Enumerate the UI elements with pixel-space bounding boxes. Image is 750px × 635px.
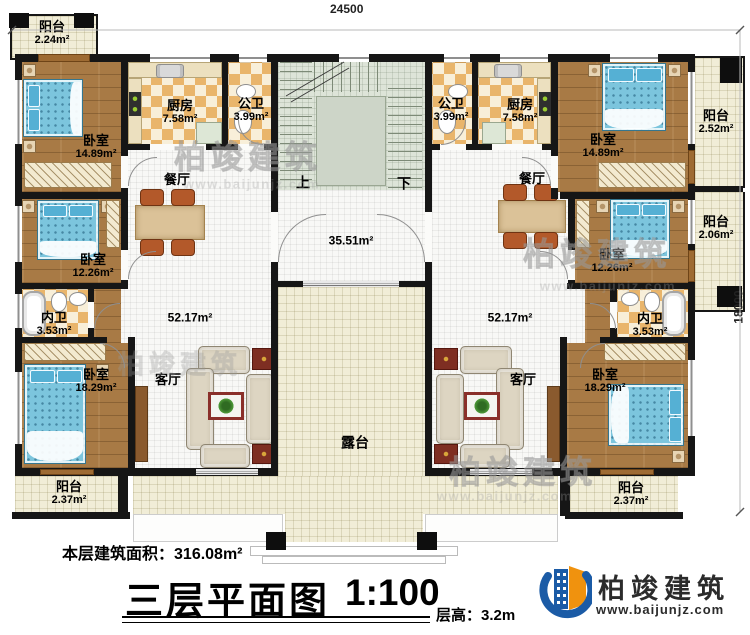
label-dining-r: 餐厅 [519,172,545,186]
label-bedroom-r2: 卧室 12.26m² [592,248,633,274]
kitchen-r-fridge [482,122,506,144]
label-bath-r: 公卫 3.99m² [434,97,469,123]
wall-terrace-east [425,287,432,468]
ensuite-r-toilet [644,292,660,312]
sliding-door-living-l [196,469,258,475]
pillar-porch-left [266,532,286,550]
wall-bedroom-r2-south [567,283,695,289]
label-kitchen-l: 厨房 7.58m² [163,99,198,125]
label-balcony-br: 阳台 2.37m² [614,481,649,507]
nightstand [596,200,609,213]
kitchen-r-sink [494,64,522,78]
porch-roof-outline-right [425,514,558,542]
wall-bedroom-r3-west [560,337,567,468]
opening-kitchen-l [150,144,206,150]
label-terrace: 露台 [341,435,369,450]
nightstand [668,64,681,77]
kitchen-r-stove [539,92,551,116]
window-bedroom-l1 [15,80,22,144]
floor-height-value: 3.2m [481,607,515,624]
window-kitchen-r [500,54,548,62]
label-bedroom-l2: 卧室 12.26m² [73,253,114,279]
floor-area-value: 316.08m² [174,546,243,563]
sofa-right-side2 [436,374,464,444]
kitchen-l-fridge [196,122,222,144]
label-bedroom-r3: 卧室 18.29m² [585,368,626,394]
dimension-right: 18000 [732,290,746,323]
door-gap-bedroom-l1 [121,156,128,188]
wardrobe-r1 [598,162,686,188]
dining-chair [171,239,195,256]
door-threshold-balcony-r2 [688,250,695,282]
label-kitchen-r: 厨房 7.58m² [503,98,538,124]
sliding-door-hall-terrace [303,281,399,287]
kitchen-l-sink [156,64,184,78]
nightstand [23,64,36,77]
stair-flight-right [388,88,422,188]
tv-cabinet-right [547,386,560,462]
floor-height-label: 层高： [436,607,481,624]
wall-balcony-bl-bottom [12,512,130,519]
porch-floor [285,512,423,542]
ensuite-l-sink [69,292,87,306]
title-underline [122,616,430,623]
nightstand [672,450,685,463]
dining-chair [534,232,558,249]
door-threshold-balcony-bl [40,469,94,475]
wall-r1-r2-divider [560,192,695,199]
dining-chair [140,189,164,206]
label-living-l-name: 客厅 [155,373,181,387]
stair-flight-left [280,62,312,186]
door-gap-ensuite-l [88,302,94,328]
window-bedroom-r1 [688,72,695,144]
wall-balcony-br-bottom [565,512,683,519]
opening-kitchen-r [492,144,542,150]
window-stair [339,54,369,62]
wall-kitchen-bath-r-divider [472,54,478,150]
door-threshold-balcony-r1 [688,150,695,184]
window-kitchen-l [150,54,210,62]
door-gap-bedroom-r1 [551,156,558,188]
door-gap-bedroom-l2 [121,250,128,280]
nightstand [588,64,601,77]
window-bedroom-r3 [688,360,695,436]
wall-ensuite-l-south [15,337,107,343]
door-threshold-balcony-tl [38,54,90,62]
terrace-floor-wide [133,476,558,514]
pillar-balcony-tl-right [74,13,94,28]
floor-area-label: 本层建筑面积： [62,546,174,563]
label-stair-down: 下 [397,176,411,191]
label-living-r-name: 客厅 [510,373,536,387]
door-gap-bath-r [440,144,466,150]
bed-l1 [23,79,83,137]
window-bedroom-l2 [15,206,22,262]
dimension-top: 24500 [330,2,363,16]
pillar-balcony-tl-left [9,13,29,28]
company-logo-url: www.baijunjz.com [596,602,724,617]
side-table [434,348,458,370]
nightstand [22,200,35,213]
label-living-r-area: 52.17m² [488,311,533,324]
label-bedroom-r1: 卧室 14.89m² [583,133,624,159]
window-bedroom-l3 [15,372,22,444]
sliding-door-living-r [470,469,532,475]
label-balcony-tl: 阳台 2.24m² [35,20,70,46]
door-threshold-balcony-br [600,469,654,475]
floor-area-note: 本层建筑面积：316.08m² [62,540,243,564]
nightstand [23,140,36,153]
wall-bedroom-l2-south [15,283,128,289]
wardrobe-r2 [576,200,590,248]
sofa-right-bottom [460,444,510,468]
drawing-scale: 1:100 [345,572,440,614]
dining-chair [503,232,527,249]
plant-right [474,398,490,414]
pillar-porch-right [417,532,437,550]
dining-table-right [498,200,566,233]
dining-table-left [135,205,205,240]
door-gap-bedroom-r2 [568,250,575,280]
entry-gap-right-unit [425,212,432,262]
stair-landing [316,96,386,186]
label-living-l-area: 52.17m² [168,311,213,324]
window-bath-r [444,54,470,62]
tv-cabinet-left [135,386,148,462]
window-bath-l [239,54,267,62]
wall-balcony-bl-side [118,476,128,516]
label-bedroom-l3: 卧室 18.29m² [76,368,117,394]
wall-balcony-br-side [560,476,570,516]
wardrobe-r3 [604,343,686,361]
wardrobe-l2 [106,200,120,248]
wall-balcony-r-divider [688,186,743,192]
label-balcony-r2: 阳台 2.06m² [699,215,734,241]
label-balcony-r1: 阳台 2.52m² [699,109,734,135]
sofa-left-side2 [246,374,274,444]
company-logo-icon [536,562,592,626]
label-stair-up: 上 [296,175,310,190]
window-bedroom-r2 [688,200,695,244]
floor-height-note: 层高：3.2m [436,604,515,625]
dining-chair [171,189,195,206]
label-ensuite-r: 内卫 3.53m² [633,312,668,338]
nightstand [672,200,685,213]
label-ensuite-l: 内卫 3.53m² [37,311,72,337]
bed-r1 [602,63,666,131]
plant-left [218,398,234,414]
window-ensuite-l [15,294,22,328]
wardrobe-l1 [24,162,112,188]
stair-flight-top [314,62,384,92]
window-bedroom-r1-top [610,54,658,62]
wall-bottom-right-unit [425,468,695,476]
kitchen-l-stove [129,92,141,116]
label-dining-l: 餐厅 [164,173,190,187]
side-table [434,444,458,464]
wall-kitchen-bath-l-divider [222,54,228,150]
sofa-left-bottom [200,444,250,468]
porch-roof-outline-left [133,514,283,542]
pillar-balcony-r1 [720,58,742,83]
wall-bedroom-l3-east [128,337,135,468]
dining-chair [503,184,527,201]
label-bath-l: 公卫 3.99m² [234,97,269,123]
ensuite-r-sink [621,292,639,306]
wall-l1-l2-divider [15,192,128,199]
entry-gap-left-unit [271,212,278,262]
floor-plan-canvas: 阳台 2.24m² 卧室 14.89m² 厨房 7.58m² 公卫 3.99m²… [0,0,750,635]
label-balcony-bl: 阳台 2.37m² [52,480,87,506]
label-hall-area: 35.51m² [329,234,374,247]
company-logo-name: 柏竣建筑 [598,567,730,606]
wardrobe-l3 [24,343,106,361]
label-bedroom-l1: 卧室 14.89m² [76,134,117,160]
wall-terrace-west [271,287,278,468]
entry-steps-inner [262,556,446,564]
